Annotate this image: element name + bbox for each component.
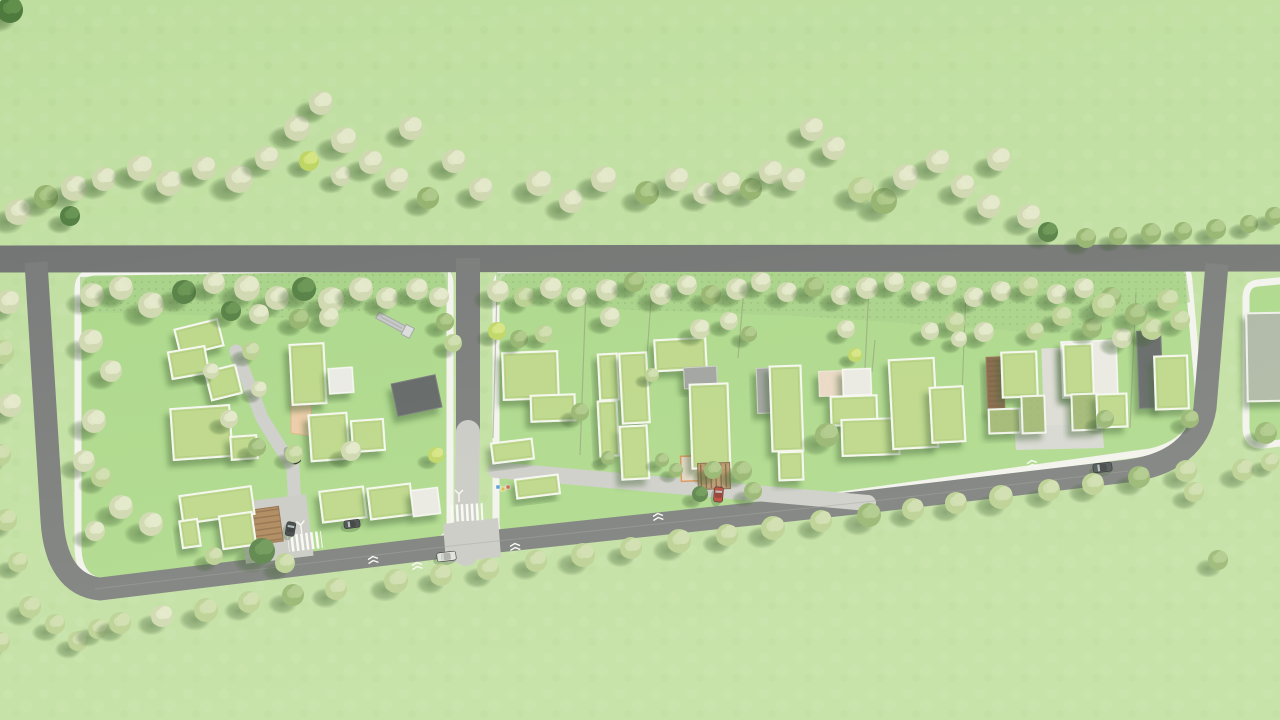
wooden-deck	[252, 506, 284, 544]
building	[219, 512, 256, 549]
building	[1154, 355, 1189, 409]
building	[1246, 313, 1280, 402]
building	[289, 343, 326, 405]
building	[598, 401, 620, 457]
building	[319, 486, 366, 522]
recycling-bin	[506, 485, 510, 489]
building	[411, 487, 441, 516]
building	[690, 383, 731, 468]
building	[843, 369, 872, 396]
building	[779, 452, 804, 481]
crosswalk	[449, 503, 484, 522]
building	[930, 386, 966, 443]
main-road-top	[0, 258, 1280, 259]
building	[770, 365, 804, 451]
building	[819, 371, 845, 397]
building	[1021, 396, 1045, 434]
building	[502, 351, 559, 400]
site-plan-canvas	[0, 0, 1280, 720]
building	[367, 483, 413, 519]
building	[179, 519, 201, 548]
recycling-bin	[496, 485, 500, 489]
building	[1063, 344, 1094, 396]
building	[841, 418, 899, 456]
building	[491, 439, 534, 464]
recycling-bin	[501, 487, 505, 491]
building	[328, 367, 354, 394]
building	[598, 354, 619, 401]
aerial-site-plan-view	[0, 0, 1280, 720]
building	[620, 425, 650, 479]
building	[515, 474, 560, 498]
building	[989, 408, 1021, 433]
building	[1001, 351, 1038, 397]
